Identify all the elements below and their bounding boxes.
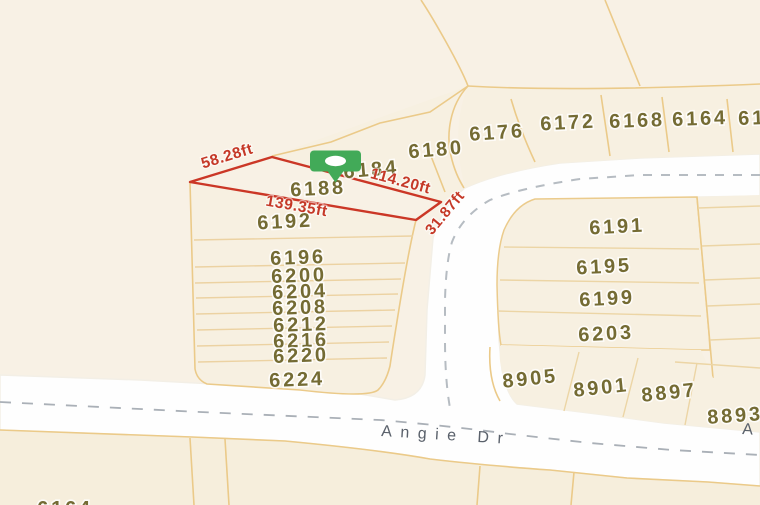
svg-text:6168: 6168 <box>609 109 665 133</box>
svg-text:6191: 6191 <box>589 215 646 240</box>
svg-text:6164: 6164 <box>37 498 93 505</box>
svg-text:6172: 6172 <box>540 111 597 136</box>
svg-text:6220: 6220 <box>273 344 329 368</box>
svg-text:6203: 6203 <box>578 322 635 347</box>
svg-text:6160: 6160 <box>738 106 760 130</box>
svg-text:6164: 6164 <box>672 107 728 131</box>
svg-text:6176: 6176 <box>469 120 526 146</box>
svg-text:6199: 6199 <box>579 287 636 312</box>
svg-text:6195: 6195 <box>576 255 633 280</box>
svg-text:6224: 6224 <box>269 368 325 392</box>
